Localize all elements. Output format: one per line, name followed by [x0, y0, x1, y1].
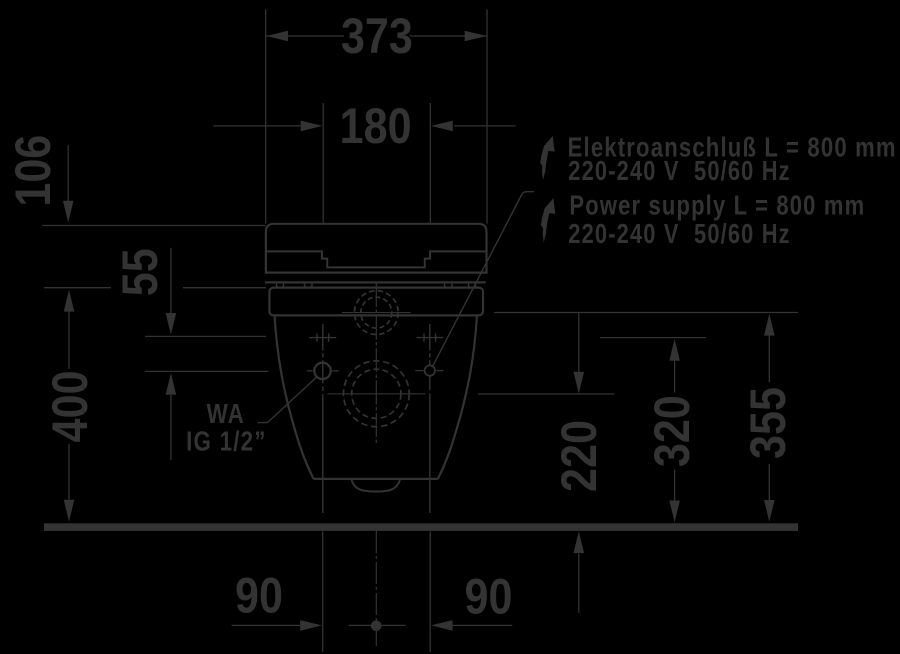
- svg-text:WA: WA: [207, 399, 245, 430]
- svg-text:Power supply L = 800 mm: Power supply L = 800 mm: [569, 190, 865, 221]
- svg-text:220-240 V 50/60 Hz: 220-240 V 50/60 Hz: [568, 218, 790, 249]
- svg-text:320: 320: [644, 395, 700, 467]
- svg-text:220: 220: [551, 420, 607, 492]
- svg-text:55: 55: [112, 248, 168, 296]
- svg-text:355: 355: [740, 387, 796, 459]
- svg-text:400: 400: [42, 371, 98, 443]
- svg-text:373: 373: [341, 8, 413, 64]
- svg-text:90: 90: [235, 568, 283, 624]
- svg-text:IG 1/2”: IG 1/2”: [186, 426, 267, 457]
- svg-text:220-240 V 50/60 Hz: 220-240 V 50/60 Hz: [568, 155, 790, 186]
- svg-text:106: 106: [5, 135, 61, 207]
- svg-text:180: 180: [340, 98, 412, 154]
- svg-text:90: 90: [465, 569, 513, 625]
